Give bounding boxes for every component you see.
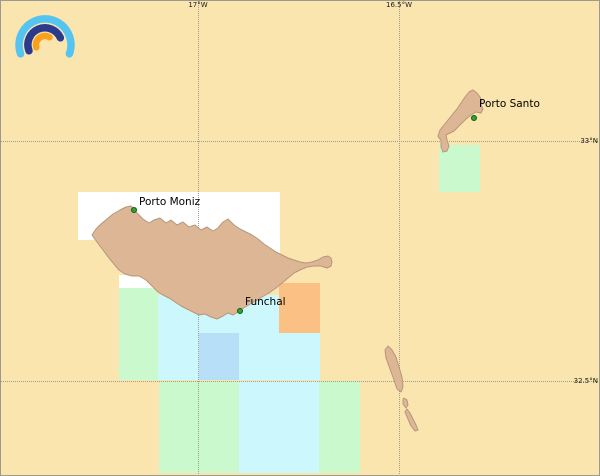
gridline-parallel-32-5n — [0, 381, 600, 382]
tile-white-madeira-north — [197, 192, 280, 256]
tile-cyan-south — [239, 381, 319, 473]
gridlabel-meridian-16-5w: 16.5°W — [386, 1, 412, 9]
place-label-porto-moniz: Porto Moniz — [139, 196, 200, 208]
gridlabel-parallel-32-5n: 32.5°N — [574, 377, 598, 385]
tile-green-porto-santo — [439, 145, 480, 192]
logo-inner-arc — [36, 36, 50, 47]
gridline-parallel-33n — [0, 141, 600, 142]
tile-orange-madeira-east — [279, 283, 320, 333]
place-label-funchal: Funchal — [245, 296, 286, 308]
gridline-meridian-16-5w — [399, 0, 400, 476]
gridlabel-meridian-17w: 17°W — [188, 1, 207, 9]
place-label-porto-santo: Porto Santo — [479, 98, 540, 110]
rainbow-logo — [6, 8, 82, 64]
tile-green-south-west — [159, 381, 239, 473]
gridlabel-parallel-33n: 33°N — [580, 137, 598, 145]
island-deserta-north — [385, 346, 403, 392]
logo-middle-arc — [28, 28, 61, 51]
place-dot-funchal — [237, 308, 243, 314]
gridline-meridian-17w — [198, 0, 199, 476]
place-dot-porto-moniz — [131, 207, 137, 213]
island-porto-santo — [438, 90, 483, 152]
tile-white-madeira-southwest — [119, 275, 158, 288]
island-deserta-middle — [403, 398, 408, 408]
tile-green-south-east — [319, 381, 360, 473]
tile-blue-madeira-south — [199, 333, 239, 380]
tile-green-madeira-west — [119, 288, 158, 380]
island-deserta-south — [405, 409, 418, 431]
place-dot-porto-santo — [471, 115, 477, 121]
logo-outer-arc — [19, 19, 71, 54]
map-canvas: 17°W16.5°W33°N32.5°NPorto MonizFunchalPo… — [0, 0, 600, 476]
